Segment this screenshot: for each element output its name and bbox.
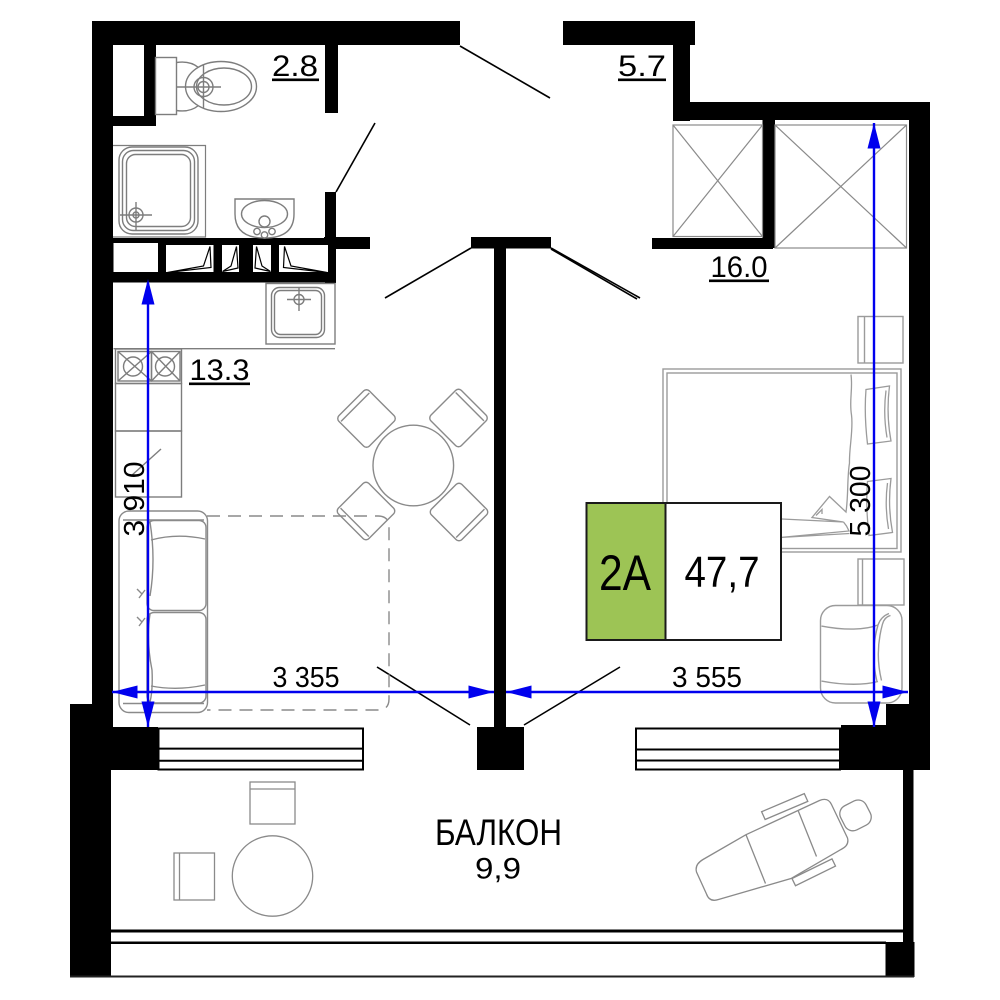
svg-text:5 300: 5 300: [845, 466, 877, 537]
svg-text:2.8: 2.8: [272, 50, 318, 83]
svg-text:47,7: 47,7: [685, 548, 760, 597]
svg-text:3 910: 3 910: [119, 462, 151, 537]
svg-text:БАЛКОН: БАЛКОН: [435, 812, 562, 853]
svg-text:13.3: 13.3: [190, 354, 250, 387]
svg-text:2A: 2A: [599, 545, 652, 601]
svg-text:9,9: 9,9: [475, 853, 521, 886]
svg-text:3 355: 3 355: [273, 662, 340, 694]
svg-text:16.0: 16.0: [711, 251, 768, 284]
svg-text:5.7: 5.7: [618, 50, 666, 83]
svg-text:3 555: 3 555: [672, 662, 742, 694]
